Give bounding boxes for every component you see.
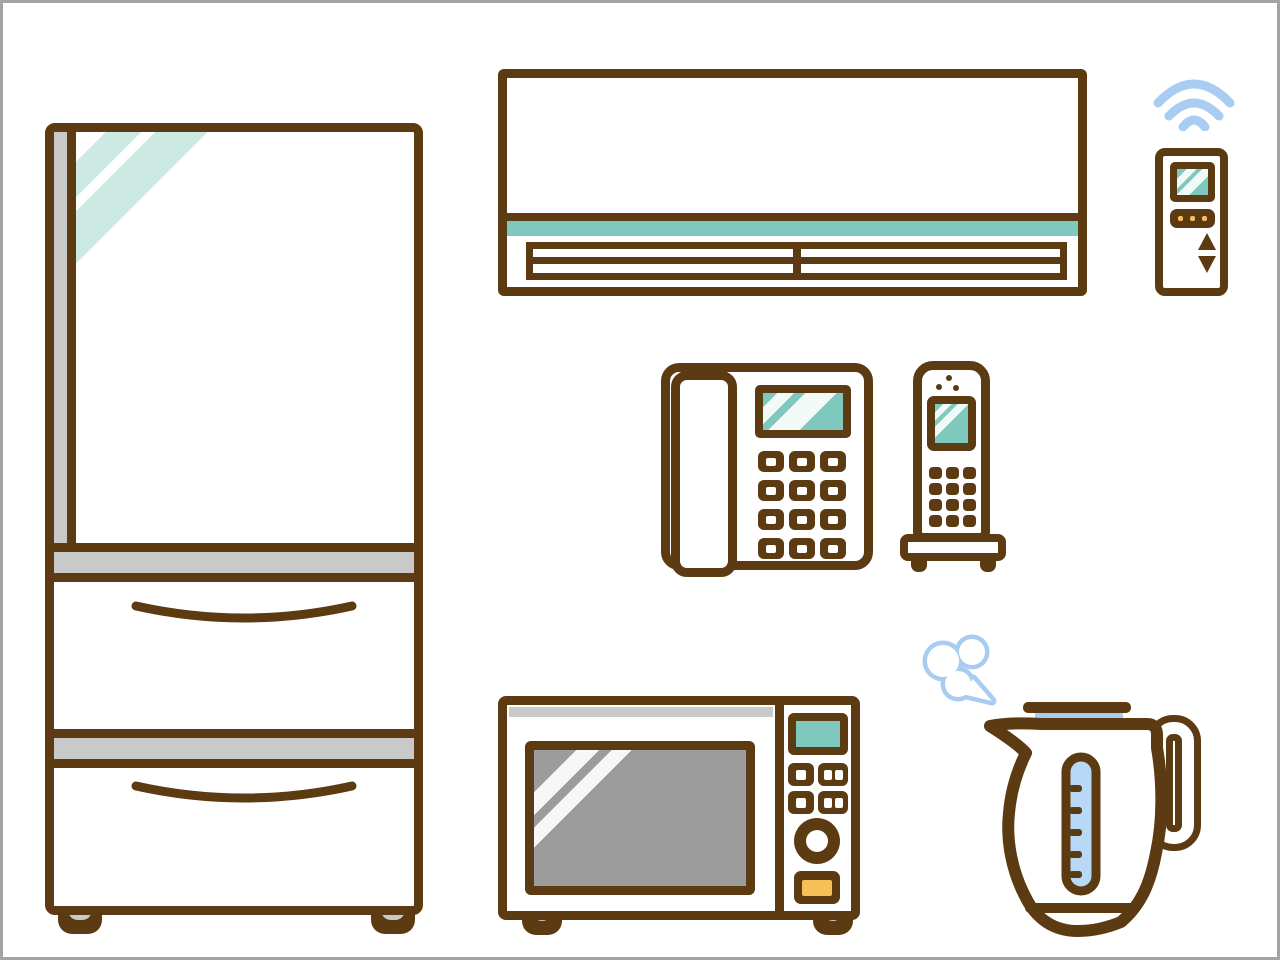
illustration-canvas bbox=[0, 0, 1280, 960]
phone-keypad-key bbox=[789, 538, 815, 559]
ac-vent-divider bbox=[793, 249, 801, 273]
cordless-screen bbox=[935, 404, 968, 443]
fridge-divider-line bbox=[54, 573, 414, 582]
cordless-keypad-key bbox=[946, 483, 959, 495]
microwave-start-button-face bbox=[802, 880, 832, 896]
phone-keypad-key bbox=[820, 451, 846, 472]
remote-down-arrow-button bbox=[1198, 256, 1216, 273]
cordless-base-foot bbox=[911, 559, 927, 572]
fridge-divider-line bbox=[54, 759, 414, 768]
microwave-button bbox=[818, 791, 848, 814]
fridge-gray-band bbox=[54, 738, 414, 759]
refrigerator bbox=[45, 123, 423, 915]
fridge-divider-line bbox=[54, 729, 414, 738]
remote-button-dot bbox=[1190, 216, 1195, 221]
microwave-start-button bbox=[794, 871, 840, 904]
cordless-base-foot bbox=[980, 559, 996, 572]
microwave-door-window bbox=[525, 741, 755, 895]
phone-screen-frame bbox=[755, 385, 851, 438]
fridge-drawer-handle bbox=[128, 778, 360, 810]
cordless-keypad-key bbox=[946, 467, 959, 479]
phone-screen bbox=[763, 393, 843, 430]
fridge-door-edge-line bbox=[67, 132, 76, 544]
phone-keypad-key bbox=[820, 509, 846, 530]
cordless-screen-frame bbox=[927, 396, 976, 451]
remote-screen-frame bbox=[1170, 162, 1215, 202]
cordless-speaker-dot bbox=[936, 384, 942, 390]
cordless-keypad-key bbox=[963, 467, 976, 479]
phone-keypad-key bbox=[758, 480, 784, 501]
kettle-water-gauge bbox=[1066, 757, 1096, 891]
remote-button-bar bbox=[1170, 209, 1215, 228]
microwave-display-frame bbox=[788, 713, 848, 755]
wireless-signal-icon bbox=[1153, 63, 1235, 131]
air-conditioner bbox=[498, 69, 1087, 296]
fridge-door-gap bbox=[54, 132, 67, 544]
phone-keypad-key bbox=[820, 480, 846, 501]
cordless-phone bbox=[913, 361, 990, 542]
ac-separator-line bbox=[507, 213, 1078, 221]
ac-teal-band bbox=[507, 221, 1078, 236]
microwave-top-strip bbox=[509, 707, 773, 717]
ac-remote bbox=[1155, 148, 1228, 296]
cordless-keypad-key bbox=[929, 499, 942, 511]
remote-up-arrow-button bbox=[1198, 233, 1216, 250]
cordless-keypad-key bbox=[946, 515, 959, 527]
cordless-keypad-key bbox=[929, 467, 942, 479]
fridge-door-shine bbox=[76, 132, 326, 382]
microwave-panel-divider bbox=[775, 705, 784, 911]
cordless-speaker-dot bbox=[953, 385, 959, 391]
cordless-speaker-dot bbox=[946, 375, 952, 381]
cordless-keypad-key bbox=[929, 515, 942, 527]
microwave-button bbox=[788, 763, 814, 786]
microwave-button bbox=[818, 763, 848, 786]
fridge-drawer-handle bbox=[128, 598, 360, 630]
remote-button-dot bbox=[1202, 216, 1207, 221]
phone-keypad-key bbox=[758, 538, 784, 559]
refrigerator-body bbox=[54, 132, 414, 906]
phone-keypad-key bbox=[758, 509, 784, 530]
microwave-button bbox=[788, 791, 814, 814]
cordless-keypad-key bbox=[963, 515, 976, 527]
remote-button-dot bbox=[1178, 216, 1183, 221]
fridge-divider-line bbox=[54, 543, 414, 552]
cordless-keypad-key bbox=[946, 499, 959, 511]
phone-handset bbox=[671, 371, 737, 577]
fridge-gray-band bbox=[54, 552, 414, 573]
cordless-keypad-key bbox=[963, 483, 976, 495]
phone-keypad-key bbox=[789, 480, 815, 501]
cordless-charging-base bbox=[900, 534, 1006, 561]
microwave-display bbox=[796, 721, 840, 747]
kettle-base-line bbox=[1025, 903, 1137, 913]
phone-keypad-key bbox=[758, 451, 784, 472]
microwave-oven bbox=[498, 696, 860, 920]
remote-screen bbox=[1177, 169, 1208, 195]
electric-kettle bbox=[981, 693, 1213, 949]
kettle-lid bbox=[1023, 702, 1131, 713]
ac-vent-panel bbox=[526, 242, 1067, 280]
phone-keypad-key bbox=[789, 451, 815, 472]
cordless-keypad-key bbox=[963, 499, 976, 511]
microwave-dial bbox=[794, 818, 840, 864]
phone-keypad-key bbox=[820, 538, 846, 559]
cordless-keypad-key bbox=[929, 483, 942, 495]
phone-keypad-key bbox=[789, 509, 815, 530]
